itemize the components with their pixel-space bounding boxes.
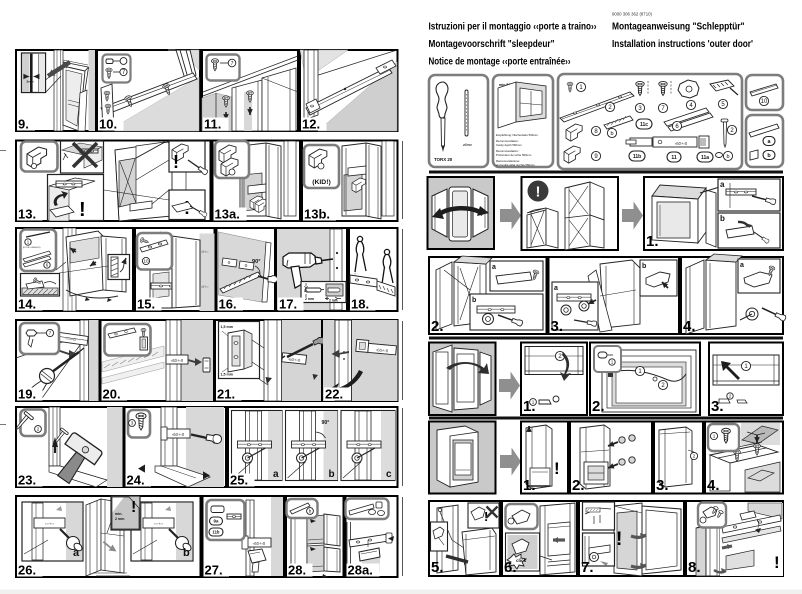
svg-text:6.: 6.	[504, 559, 517, 576]
svg-text:▫60+▫0: ▫60+▫0	[253, 541, 266, 546]
svg-text:a: a	[73, 547, 80, 559]
svg-text:3.: 3.	[711, 398, 724, 415]
svg-text:▫▫▫+▫▫: ▫▫▫+▫▫	[45, 521, 55, 526]
svg-text:3: 3	[131, 421, 134, 426]
svg-text:11c: 11c	[640, 122, 648, 128]
svg-text:13.: 13.	[18, 207, 36, 222]
svg-text:click: click	[516, 558, 527, 563]
svg-text:22.: 22.	[325, 387, 343, 402]
svg-text:!: !	[536, 184, 541, 201]
svg-text:4.: 4.	[683, 318, 696, 335]
svg-text:11b: 11b	[213, 529, 220, 534]
svg-text:2.: 2.	[592, 398, 605, 415]
svg-text:24.: 24.	[127, 473, 145, 488]
svg-text:min.: min.	[115, 512, 122, 516]
svg-text:Cavity depth 560mm: Cavity depth 560mm	[496, 143, 522, 147]
svg-text:2 mm: 2 mm	[305, 297, 314, 301]
svg-text:!: !	[616, 529, 622, 550]
svg-text:90°: 90°	[322, 420, 330, 426]
svg-text:a: a	[740, 262, 744, 269]
svg-text:13b.: 13b.	[304, 207, 330, 222]
svg-text:▫60+▫0: ▫60+▫0	[171, 358, 184, 363]
svg-text:16.: 16.	[219, 297, 237, 312]
svg-text:10.: 10.	[99, 117, 117, 132]
svg-text:23.: 23.	[18, 473, 36, 488]
svg-text:2: 2	[693, 454, 696, 459]
svg-text:c: c	[386, 469, 392, 480]
svg-text:21.: 21.	[217, 387, 235, 402]
svg-text:!: !	[774, 553, 780, 572]
svg-text:Istruzioni per il montaggio ‹‹: Istruzioni per il montaggio ‹‹porte a tr…	[429, 22, 597, 33]
svg-text:b: b	[329, 469, 335, 480]
svg-text:4.: 4.	[707, 477, 720, 494]
svg-text:b: b	[726, 154, 729, 160]
svg-text:11b: 11b	[633, 154, 641, 160]
svg-text:1,5 mm: 1,5 mm	[221, 325, 233, 329]
svg-text:14.: 14.	[18, 297, 36, 312]
svg-text:Empfehlung: Nischentiefe 560mm: Empfehlung: Nischentiefe 560mm	[496, 133, 539, 137]
svg-text:▫0+▫▫: ▫0+▫▫	[201, 285, 209, 289]
svg-text:b: b	[309, 509, 312, 514]
svg-text:!: !	[131, 499, 136, 516]
svg-text:!: !	[554, 459, 560, 478]
svg-text:TORX 20: TORX 20	[434, 157, 453, 162]
svg-text:3.: 3.	[656, 477, 669, 494]
svg-text:▫▫▫+▫▫: ▫▫▫+▫▫	[154, 521, 164, 526]
svg-text:Notice de montage ‹‹porte entr: Notice de montage ‹‹porte entraînée››	[429, 57, 571, 68]
svg-text:!: !	[79, 199, 86, 221]
svg-text:b: b	[720, 214, 725, 223]
svg-text:7.: 7.	[581, 559, 594, 576]
svg-text:11: 11	[671, 155, 677, 161]
svg-text:9.: 9.	[18, 117, 29, 132]
svg-text:28a.: 28a.	[348, 563, 373, 578]
svg-text:17.: 17.	[279, 297, 297, 312]
svg-text:(KIT SLL 60506-02): (KIT SLL 60506-02)	[23, 247, 41, 249]
svg-text:a: a	[554, 285, 558, 292]
svg-text:10: 10	[143, 259, 149, 264]
svg-text:▫60+▫0: ▫60+▫0	[172, 432, 185, 437]
svg-text:2: 2	[37, 427, 40, 432]
svg-text:Montagevoorschrift "sleepdeur": Montagevoorschrift "sleepdeur"	[429, 39, 555, 50]
svg-text:15.: 15.	[137, 297, 155, 312]
svg-text:90°: 90°	[252, 259, 260, 265]
svg-text:b: b	[183, 547, 190, 559]
svg-text:Montageanweisung "Schlepptür": Montageanweisung "Schlepptür"	[612, 22, 745, 33]
svg-text:2.: 2.	[431, 318, 444, 335]
svg-text:13a.: 13a.	[215, 207, 240, 222]
svg-text:▫60+▫0: ▫60+▫0	[675, 141, 688, 146]
svg-text:5.: 5.	[431, 559, 444, 576]
svg-text:19.: 19.	[18, 387, 36, 402]
svg-text:1,5 mm: 1,5 mm	[221, 373, 233, 377]
svg-text:28.: 28.	[288, 563, 306, 578]
svg-text:11.: 11.	[204, 117, 221, 132]
svg-text:!: !	[173, 152, 179, 172]
svg-text:7: 7	[49, 331, 52, 337]
svg-text:20.: 20.	[103, 387, 121, 402]
svg-text:10: 10	[761, 99, 768, 105]
svg-text:1.: 1.	[523, 398, 536, 415]
svg-text:26.: 26.	[18, 563, 36, 578]
svg-text:1: 1	[713, 434, 716, 439]
svg-text:Profondeur de niche 560mm: Profondeur de niche 560mm	[496, 153, 532, 157]
svg-text:2.: 2.	[572, 477, 585, 494]
svg-text:11a: 11a	[701, 155, 709, 161]
svg-text:profondità della nicchia 560mm: profondità della nicchia 560mm	[496, 163, 535, 167]
svg-text:25.: 25.	[230, 473, 248, 488]
svg-text:2 mm: 2 mm	[115, 517, 124, 521]
svg-text:27.: 27.	[205, 563, 223, 578]
svg-text:1.: 1.	[523, 477, 536, 494]
svg-text:12.: 12.	[302, 117, 320, 132]
svg-text:7: 7	[231, 61, 234, 67]
svg-text:(KID!): (KID!)	[312, 179, 331, 186]
svg-text:2mm: 2mm	[27, 80, 34, 84]
svg-text:b: b	[472, 297, 476, 304]
svg-text:9000 306 362 (8710): 9000 306 362 (8710)	[612, 12, 652, 17]
svg-text:▫0+▫▫: ▫0+▫▫	[201, 250, 209, 254]
svg-text:b: b	[610, 131, 613, 137]
svg-text:2 mm: 2 mm	[329, 299, 338, 303]
svg-text:b: b	[642, 263, 646, 270]
svg-text:a: a	[720, 180, 725, 189]
svg-text:3.: 3.	[551, 318, 564, 335]
svg-text:9a: 9a	[214, 519, 219, 524]
svg-text:8.: 8.	[688, 559, 701, 576]
svg-text:a: a	[492, 264, 496, 271]
svg-text:ø8mm: ø8mm	[463, 143, 472, 147]
svg-text:18.: 18.	[351, 297, 369, 312]
svg-text:a: a	[273, 469, 279, 480]
svg-text:Installation instructions 'out: Installation instructions 'outer door'	[612, 39, 753, 50]
